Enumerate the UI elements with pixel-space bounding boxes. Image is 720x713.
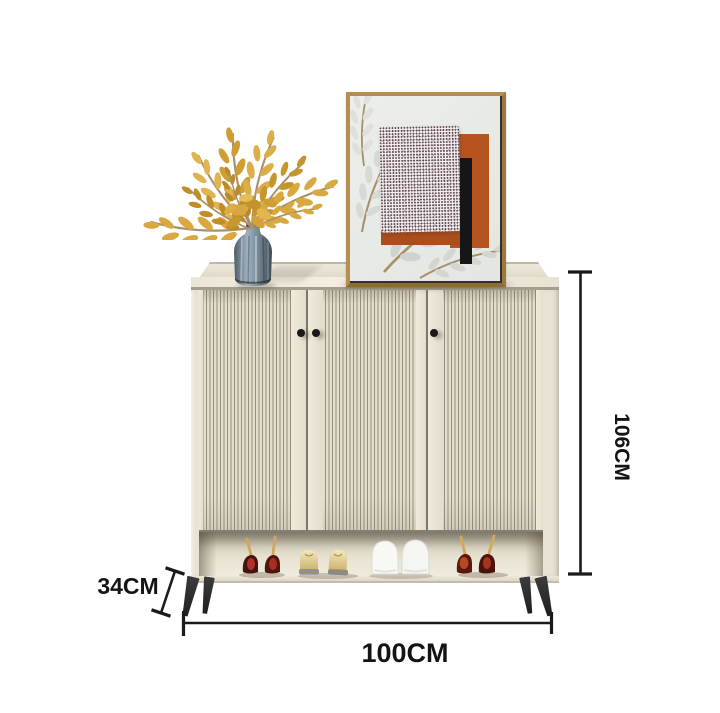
door-edge-right xyxy=(536,290,543,530)
height-dimension-label: 106CM xyxy=(609,402,633,492)
door-knob-left[interactable] xyxy=(297,329,305,337)
shoes-graphic xyxy=(199,528,543,580)
door-knob-right[interactable] xyxy=(430,329,438,337)
door-stile-middle-left xyxy=(308,290,323,530)
depth-dimension-cap-bottom xyxy=(152,610,171,616)
cabinet-doors xyxy=(199,290,543,532)
gold-flats xyxy=(298,550,358,579)
door-knob-middle[interactable] xyxy=(312,329,320,337)
art-black-bar xyxy=(460,158,472,264)
width-dimension-label: 100CM xyxy=(345,638,465,668)
white-sneakers xyxy=(369,540,433,579)
door-stile-left-right xyxy=(291,290,306,530)
door-stile-right-left xyxy=(428,290,443,530)
door-edge-left xyxy=(199,290,203,530)
product-photo-scene: 106CM 100CM 34CM xyxy=(0,0,720,713)
depth-dimension-label: 34CM xyxy=(88,573,168,599)
cabinet-leg-front-left xyxy=(177,575,201,617)
foliage-graphic xyxy=(140,110,360,240)
depth-dimension-cap-top xyxy=(166,568,185,574)
artwork-canvas xyxy=(350,96,500,281)
stiletto-heels-right xyxy=(457,536,508,578)
art-speckle-panel xyxy=(379,125,461,233)
door-stile-middle-right xyxy=(416,290,426,530)
artwork-frame xyxy=(346,92,506,287)
stiletto-heels-left xyxy=(239,537,285,578)
